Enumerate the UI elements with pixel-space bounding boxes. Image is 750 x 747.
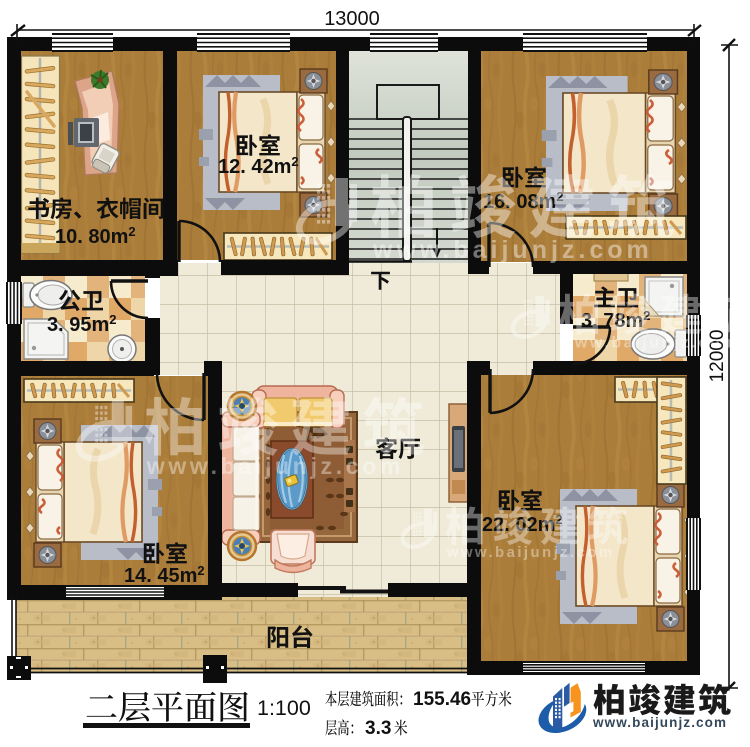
svg-text:www.baijunjz.com: www.baijunjz.com: [592, 715, 727, 730]
svg-text:www.baijunjz.com: www.baijunjz.com: [146, 453, 404, 479]
svg-text:www.baijunjz.com: www.baijunjz.com: [372, 236, 653, 264]
svg-text:14. 45m2: 14. 45m2: [124, 563, 205, 587]
svg-text:155.46: 155.46: [413, 689, 471, 710]
svg-text:3. 95m2: 3. 95m2: [47, 312, 117, 336]
svg-text:12. 42m2: 12. 42m2: [218, 154, 299, 178]
svg-text:3.3: 3.3: [365, 718, 391, 739]
svg-text:10. 80m2: 10. 80m2: [55, 224, 136, 248]
svg-text:13000: 13000: [324, 8, 380, 30]
svg-text:www.baijunjz.com: www.baijunjz.com: [559, 334, 739, 351]
svg-text:1:100: 1:100: [257, 696, 311, 720]
svg-text:www.baijunjz.com: www.baijunjz.com: [446, 544, 615, 561]
